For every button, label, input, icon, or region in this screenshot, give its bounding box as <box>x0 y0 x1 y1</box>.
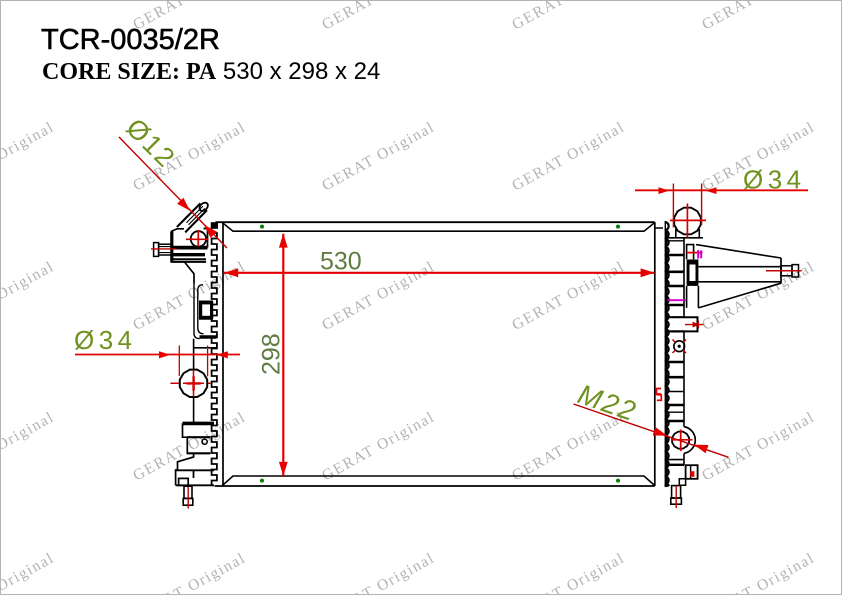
svg-text:Ø34: Ø34 <box>74 325 137 355</box>
svg-text:CORE SIZE: PA 530 x 298 x 24: CORE SIZE: PA 530 x 298 x 24 <box>42 58 380 85</box>
svg-text:298: 298 <box>258 333 286 375</box>
svg-text:530: 530 <box>320 248 362 276</box>
svg-text:TCR-0035/2R: TCR-0035/2R <box>41 24 220 56</box>
svg-text:Ø34: Ø34 <box>743 165 806 195</box>
